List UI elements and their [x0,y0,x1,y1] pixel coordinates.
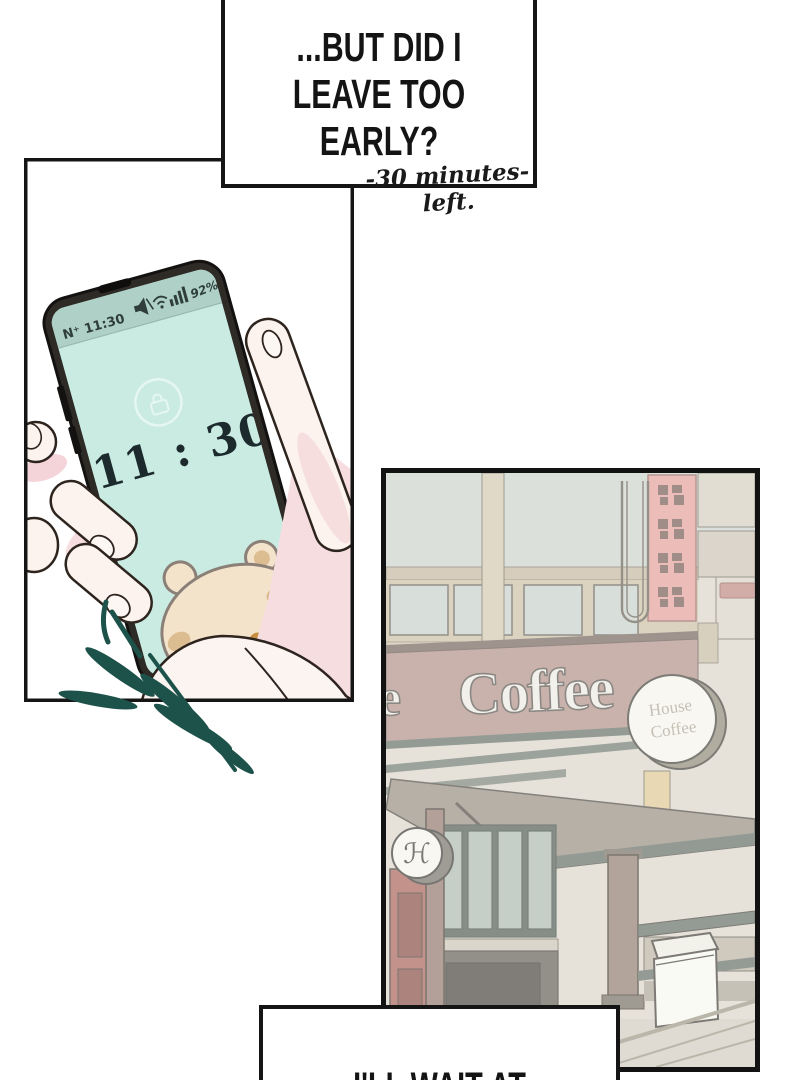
comic-page: N⁺ 11:30 [0,0,800,1080]
speech-top-line-2: LEAVE TOO EARLY? [265,71,493,165]
panel-coffee: e Coffee House Coffee [381,468,760,1072]
speech-bottom-line-1: I'LL WAIT AT [312,1065,566,1080]
fade-overlay [386,473,755,1067]
speech-top-line-1: ...BUT DID I [265,24,493,71]
speech-box-bottom: I'LL WAIT AT [259,1005,620,1080]
coffee-storefront: e Coffee House Coffee [386,473,755,1067]
handwritten-note: -30 minutes- left. [349,157,548,221]
panel-phone: N⁺ 11:30 [24,158,354,776]
